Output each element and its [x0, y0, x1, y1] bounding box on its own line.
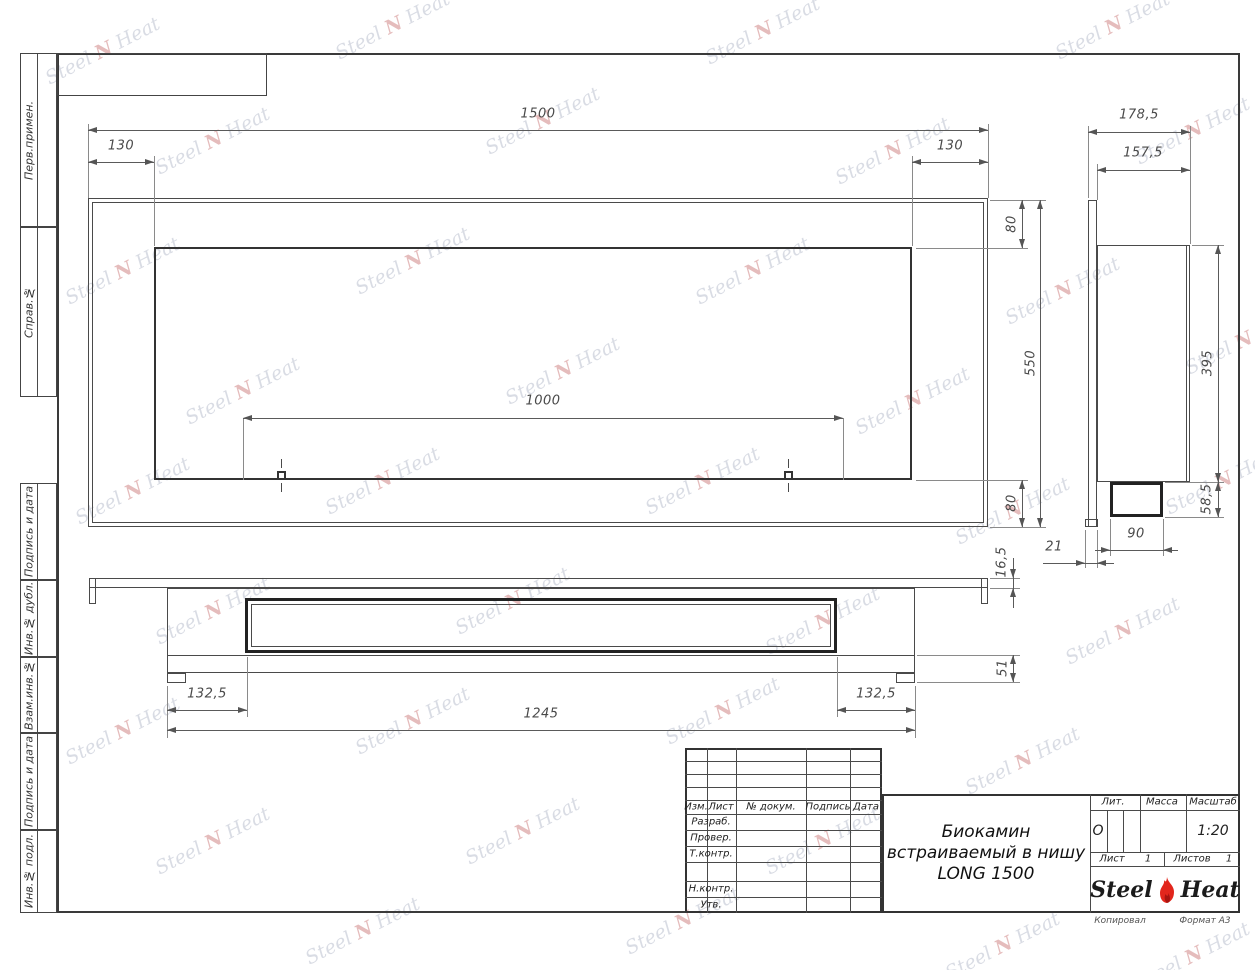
tab-centerline [788, 483, 789, 492]
dimension-line [167, 730, 915, 731]
dimension-arrow [167, 707, 176, 713]
dimension-arrow [1037, 518, 1043, 527]
dimension-label: 80 [1005, 494, 1020, 512]
dimension-arrow [1019, 239, 1025, 248]
dimension-arrow [1010, 655, 1016, 664]
left-stamp-label: Взам.инв.№ [21, 658, 37, 732]
dimension-label: 51 [996, 659, 1011, 677]
dimension-arrow [1097, 167, 1106, 173]
format-label: Формат А3 [1179, 916, 1230, 926]
rev-header-sign: Подпись [806, 802, 851, 813]
revision-table-line [685, 897, 882, 898]
dimension-arrow [145, 159, 154, 165]
extension-line [990, 527, 1046, 528]
rev-header-date: Дата [853, 802, 879, 813]
dimension-label: 178,5 [1119, 108, 1159, 123]
stamp-line [1186, 794, 1187, 852]
dimension-line [167, 710, 247, 711]
dimension-label: 16,5 [995, 547, 1010, 578]
drawing-sheet: Steel N HeatSteel N HeatSteel N HeatStee… [0, 0, 1255, 970]
revision-table-line [685, 846, 882, 847]
left-stamp-cell: Взам.инв.№ [20, 657, 57, 733]
dimension-label: 132,5 [187, 687, 227, 702]
dimension-arrow [1215, 508, 1221, 517]
left-stamp-label: Инв.№ подл. [21, 831, 37, 912]
rev-header-izm: Изм. [684, 802, 708, 813]
dimension-label: 550 [1024, 350, 1039, 376]
bottom-view-cap-left [89, 578, 96, 604]
tab-centerline [788, 459, 789, 468]
left-stamp-divider [37, 581, 38, 656]
revision-table-line [685, 830, 882, 831]
side-view-flange-foot [1085, 519, 1098, 527]
revision-table-line [685, 814, 882, 815]
dimension-arrow [1076, 560, 1085, 566]
left-stamp-cell: Подпись и дата [20, 733, 57, 830]
rev-row-prover: Провер. [690, 833, 732, 844]
extension-line [915, 686, 916, 738]
stamp-line [1090, 810, 1240, 811]
left-stamp-divider [37, 734, 38, 829]
rev-header-doc: № докум. [746, 802, 795, 813]
side-view-flange [1088, 200, 1097, 527]
dimension-label: 58,5 [1200, 484, 1215, 515]
title-line-2: встраиваемый в нишу [887, 843, 1085, 864]
dimension-arrow [88, 159, 97, 165]
dimension-label: 130 [937, 139, 963, 154]
sheets-value: 1 [1226, 854, 1232, 865]
extension-line [247, 657, 248, 717]
revision-table-line [685, 761, 882, 762]
extension-line [988, 124, 989, 198]
left-stamp-cell: Инв.№ дубл. [20, 580, 57, 657]
left-stamp-label: Справ.№ [21, 228, 37, 396]
copied-label: Копировал [1094, 916, 1145, 926]
dimension-arrow [1019, 480, 1025, 489]
dimension-arrow [906, 707, 915, 713]
left-stamp-cell: Справ.№ [20, 227, 57, 397]
front-view-opening [154, 247, 912, 480]
extension-line [912, 156, 913, 246]
dimension-label: 90 [1127, 527, 1145, 542]
dimension-label: 80 [1005, 215, 1020, 233]
dimension-arrow [238, 707, 247, 713]
left-stamp-cell: Инв.№ подл. [20, 830, 57, 913]
dimension-line [1040, 200, 1041, 527]
dimension-arrow [1010, 673, 1016, 682]
side-view-burner-box [1110, 482, 1163, 517]
rev-row-utv: Утв. [701, 900, 722, 911]
revision-table-line [685, 787, 882, 788]
extension-line [990, 578, 1020, 579]
dimension-line [1088, 132, 1190, 133]
rev-row-nkontr: Н.контр. [689, 884, 734, 895]
left-stamp-divider [37, 54, 38, 226]
dimension-line [1097, 170, 1190, 171]
mass-label: Масса [1146, 797, 1178, 808]
scale-value: 1:20 [1197, 823, 1228, 839]
bottom-view-cap-right [981, 578, 988, 604]
extension-line [1165, 517, 1224, 518]
designation-box [57, 53, 267, 96]
scale-label: Масштаб [1189, 797, 1237, 808]
left-stamp-label: Подпись и дата [21, 484, 37, 579]
rev-row-tkontr: Т.контр. [689, 849, 732, 860]
left-stamp-divider [37, 658, 38, 732]
flame-icon [1157, 877, 1177, 903]
bottom-view-foot-left [167, 673, 186, 683]
dimension-line [1218, 245, 1219, 482]
dimension-label: 1500 [520, 107, 555, 122]
dimension-arrow [837, 707, 846, 713]
rev-header-list: Лист [708, 802, 733, 813]
dimension-label: 21 [1045, 540, 1063, 555]
dimension-arrow [1215, 245, 1221, 254]
extension-line [916, 480, 1028, 481]
extension-line [1088, 126, 1089, 198]
left-stamp-label: Перв.примен. [21, 54, 37, 226]
rev-row-razrab: Разраб. [691, 817, 730, 828]
side-view-inner-wall [1186, 245, 1187, 482]
stamp-line [1123, 810, 1124, 852]
dimension-arrow [1010, 588, 1016, 597]
left-stamp-cell: Перв.примен. [20, 53, 57, 227]
dimension-arrow [912, 159, 921, 165]
extension-line [916, 248, 1028, 249]
tab-centerline [281, 459, 282, 468]
dimension-arrow [243, 415, 252, 421]
dimension-line [243, 418, 843, 419]
revision-table-line [685, 862, 882, 863]
dimension-arrow [1097, 560, 1106, 566]
dimension-arrow [979, 159, 988, 165]
extension-line [917, 655, 1020, 656]
sheet-label: Лист [1099, 854, 1124, 865]
sheet-value: 1 [1145, 854, 1151, 865]
left-stamp-label: Инв.№ дубл. [21, 581, 37, 656]
dimension-label: 132,5 [856, 687, 896, 702]
steelheat-logo: Steel Heat [1090, 866, 1240, 913]
tab-centerline [281, 483, 282, 492]
dimension-arrow [1215, 473, 1221, 482]
steelheat-watermark: Steel N Heat [942, 908, 1064, 970]
dimension-arrow [167, 727, 176, 733]
dimension-line [912, 162, 988, 163]
dimension-arrow [1101, 547, 1110, 553]
dimension-label: 1245 [523, 707, 558, 722]
bottom-view-slot-inner [251, 604, 831, 647]
extension-line [917, 682, 1020, 683]
stamp-line [1107, 810, 1108, 852]
stamp-line [1140, 794, 1141, 852]
front-view-mount-tab-left [277, 471, 286, 480]
dimension-arrow [1019, 518, 1025, 527]
revision-table-line [685, 881, 882, 882]
dimension-arrow [834, 415, 843, 421]
dimension-line [1013, 558, 1014, 608]
lit-value: О [1092, 823, 1103, 839]
dimension-arrow [1181, 167, 1190, 173]
bottom-view-flange [89, 578, 988, 588]
document-title: Биокамин встраиваемый в нишу LONG 1500 [882, 794, 1090, 913]
sheets-label: Листов [1173, 854, 1210, 865]
stamp-line [1164, 852, 1165, 866]
revision-table-line [685, 774, 882, 775]
dimension-arrow [1181, 129, 1190, 135]
dimension-arrow [906, 727, 915, 733]
lit-label: Лит. [1101, 797, 1124, 808]
left-stamp-divider [37, 228, 38, 396]
extension-line [1190, 126, 1191, 244]
left-stamp-label: Подпись и дата [21, 734, 37, 829]
logo-heat-text: Heat [1181, 877, 1240, 903]
front-view-mount-tab-right [784, 471, 793, 480]
dimension-label: 157,5 [1123, 146, 1163, 161]
dimension-arrow [1215, 482, 1221, 491]
dimension-label: 130 [108, 139, 134, 154]
left-stamp-divider [37, 831, 38, 912]
dimension-line [837, 710, 915, 711]
left-stamp-cell: Подпись и дата [20, 483, 57, 580]
bottom-view-foot-right [896, 673, 915, 683]
left-stamp-divider [37, 484, 38, 579]
side-view-body [1097, 245, 1190, 482]
title-line-3: LONG 1500 [938, 864, 1035, 885]
dimension-arrow [1019, 200, 1025, 209]
extension-line [843, 418, 844, 480]
extension-line [154, 156, 155, 246]
logo-steel-text: Steel [1090, 877, 1152, 903]
dimension-arrow [1037, 200, 1043, 209]
dimension-label: 395 [1201, 350, 1216, 376]
dimension-label: 1000 [525, 394, 560, 409]
dimension-arrow [979, 127, 988, 133]
dimension-arrow [1088, 129, 1097, 135]
title-line-1: Биокамин [942, 822, 1031, 843]
bottom-view-fold-line [167, 655, 915, 656]
dimension-line [88, 130, 988, 131]
extension-line [243, 418, 244, 480]
dimension-arrow [88, 127, 97, 133]
dimension-arrow [1010, 569, 1016, 578]
dimension-arrow [1163, 547, 1172, 553]
